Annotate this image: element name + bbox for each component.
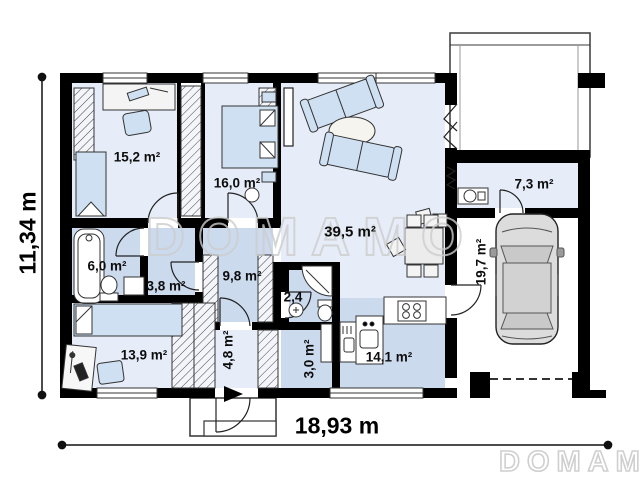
furniture-utility [458, 188, 488, 204]
terrace [450, 33, 590, 157]
dimension-height-label: 11,34 m [15, 191, 42, 274]
area-label-pantry: 3,0 m² [302, 339, 316, 378]
dimension-width-label: 18,93 m [295, 413, 379, 440]
area-label-garage: 19,7 m² [474, 239, 488, 286]
area-label-wc: 2,4 [284, 290, 303, 304]
area-label-bedroom1: 15,2 m² [114, 150, 161, 164]
floor-plan-drawing [0, 0, 640, 484]
area-label-kitchen: 14,1 m² [366, 350, 413, 364]
area-label-hall: 3,8 m² [146, 279, 185, 293]
floor-plan-page: DOMAMO DOMAMO 15,2 m² 16,0 m² 39,5 m² 7,… [0, 0, 640, 484]
area-label-living: 39,5 m² [324, 225, 376, 240]
area-label-corridor: 9,8 m² [222, 269, 261, 283]
entry-porch [190, 398, 276, 436]
area-label-vestibule: 4,8 m² [221, 330, 235, 369]
area-label-bedroom2: 16,0 m² [214, 176, 261, 190]
car [490, 214, 564, 344]
area-label-bathroom: 6,0 m² [87, 259, 126, 273]
area-label-bedroom3: 13,9 m² [121, 348, 168, 362]
area-label-utility: 7,3 m² [514, 177, 553, 191]
